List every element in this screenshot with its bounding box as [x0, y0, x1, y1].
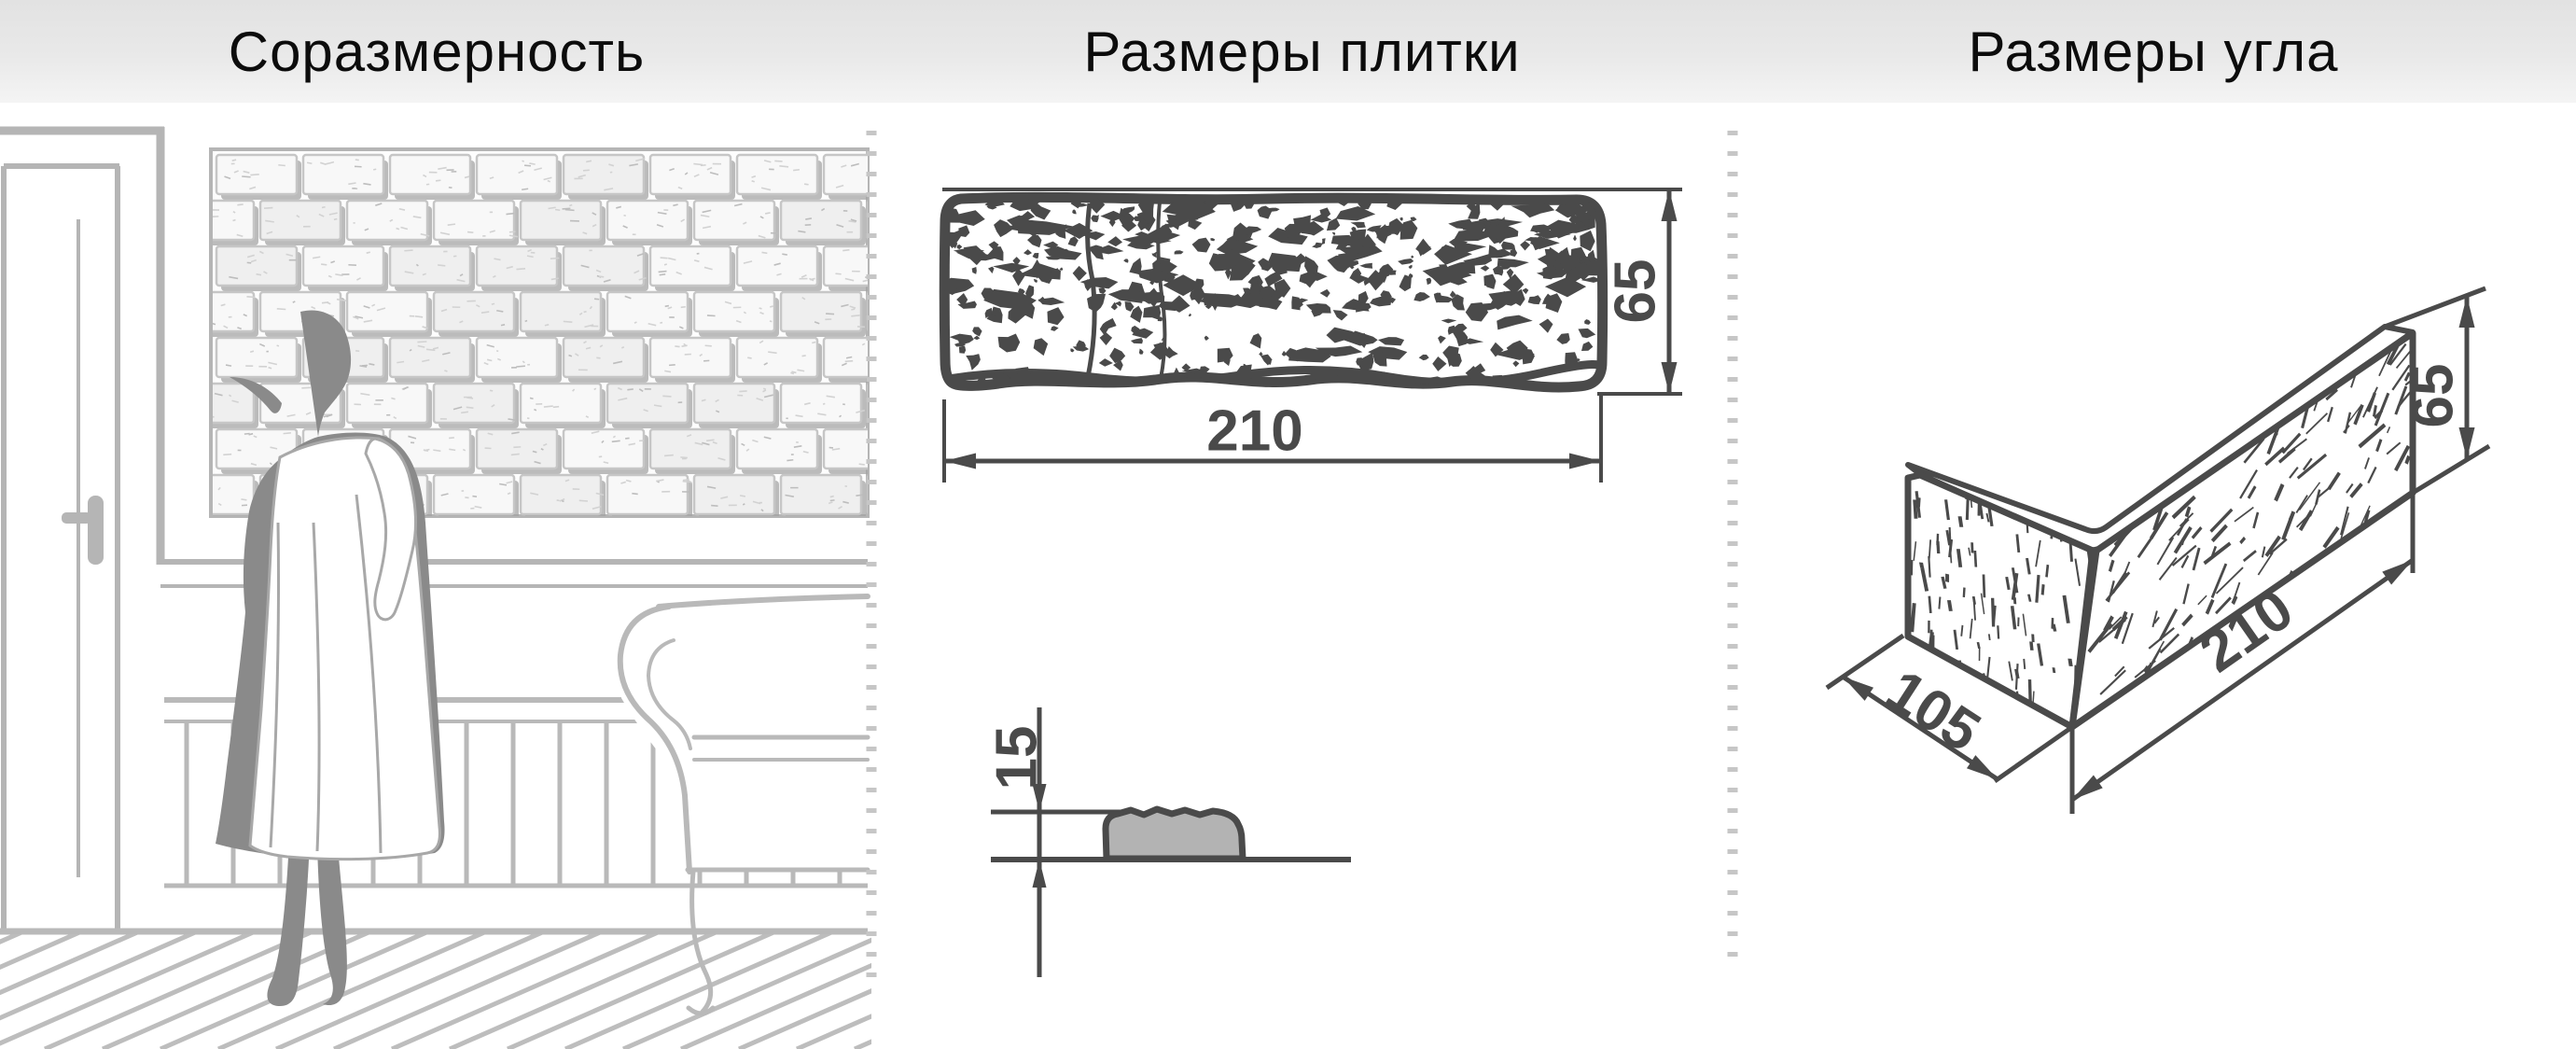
tile-side-view: 15 [985, 707, 1352, 977]
tile-front-view: 210 65 [940, 189, 1682, 483]
diagram-canvas: 210 65 15 [0, 0, 2576, 1049]
floor [0, 930, 1185, 1049]
infographic: Соразмерность Размеры плитки Размеры угл… [0, 0, 2576, 1049]
tile-thickness-value: 15 [985, 726, 1050, 790]
tile-width-value: 210 [1206, 399, 1302, 464]
tile-cross-section [1106, 809, 1243, 859]
tile-height-value: 65 [1604, 259, 1668, 324]
door [4, 166, 119, 932]
corner-piece-view: 105 210 65 [1827, 288, 2489, 814]
corner-height-value: 65 [2402, 364, 2466, 428]
door-handle [62, 512, 91, 524]
